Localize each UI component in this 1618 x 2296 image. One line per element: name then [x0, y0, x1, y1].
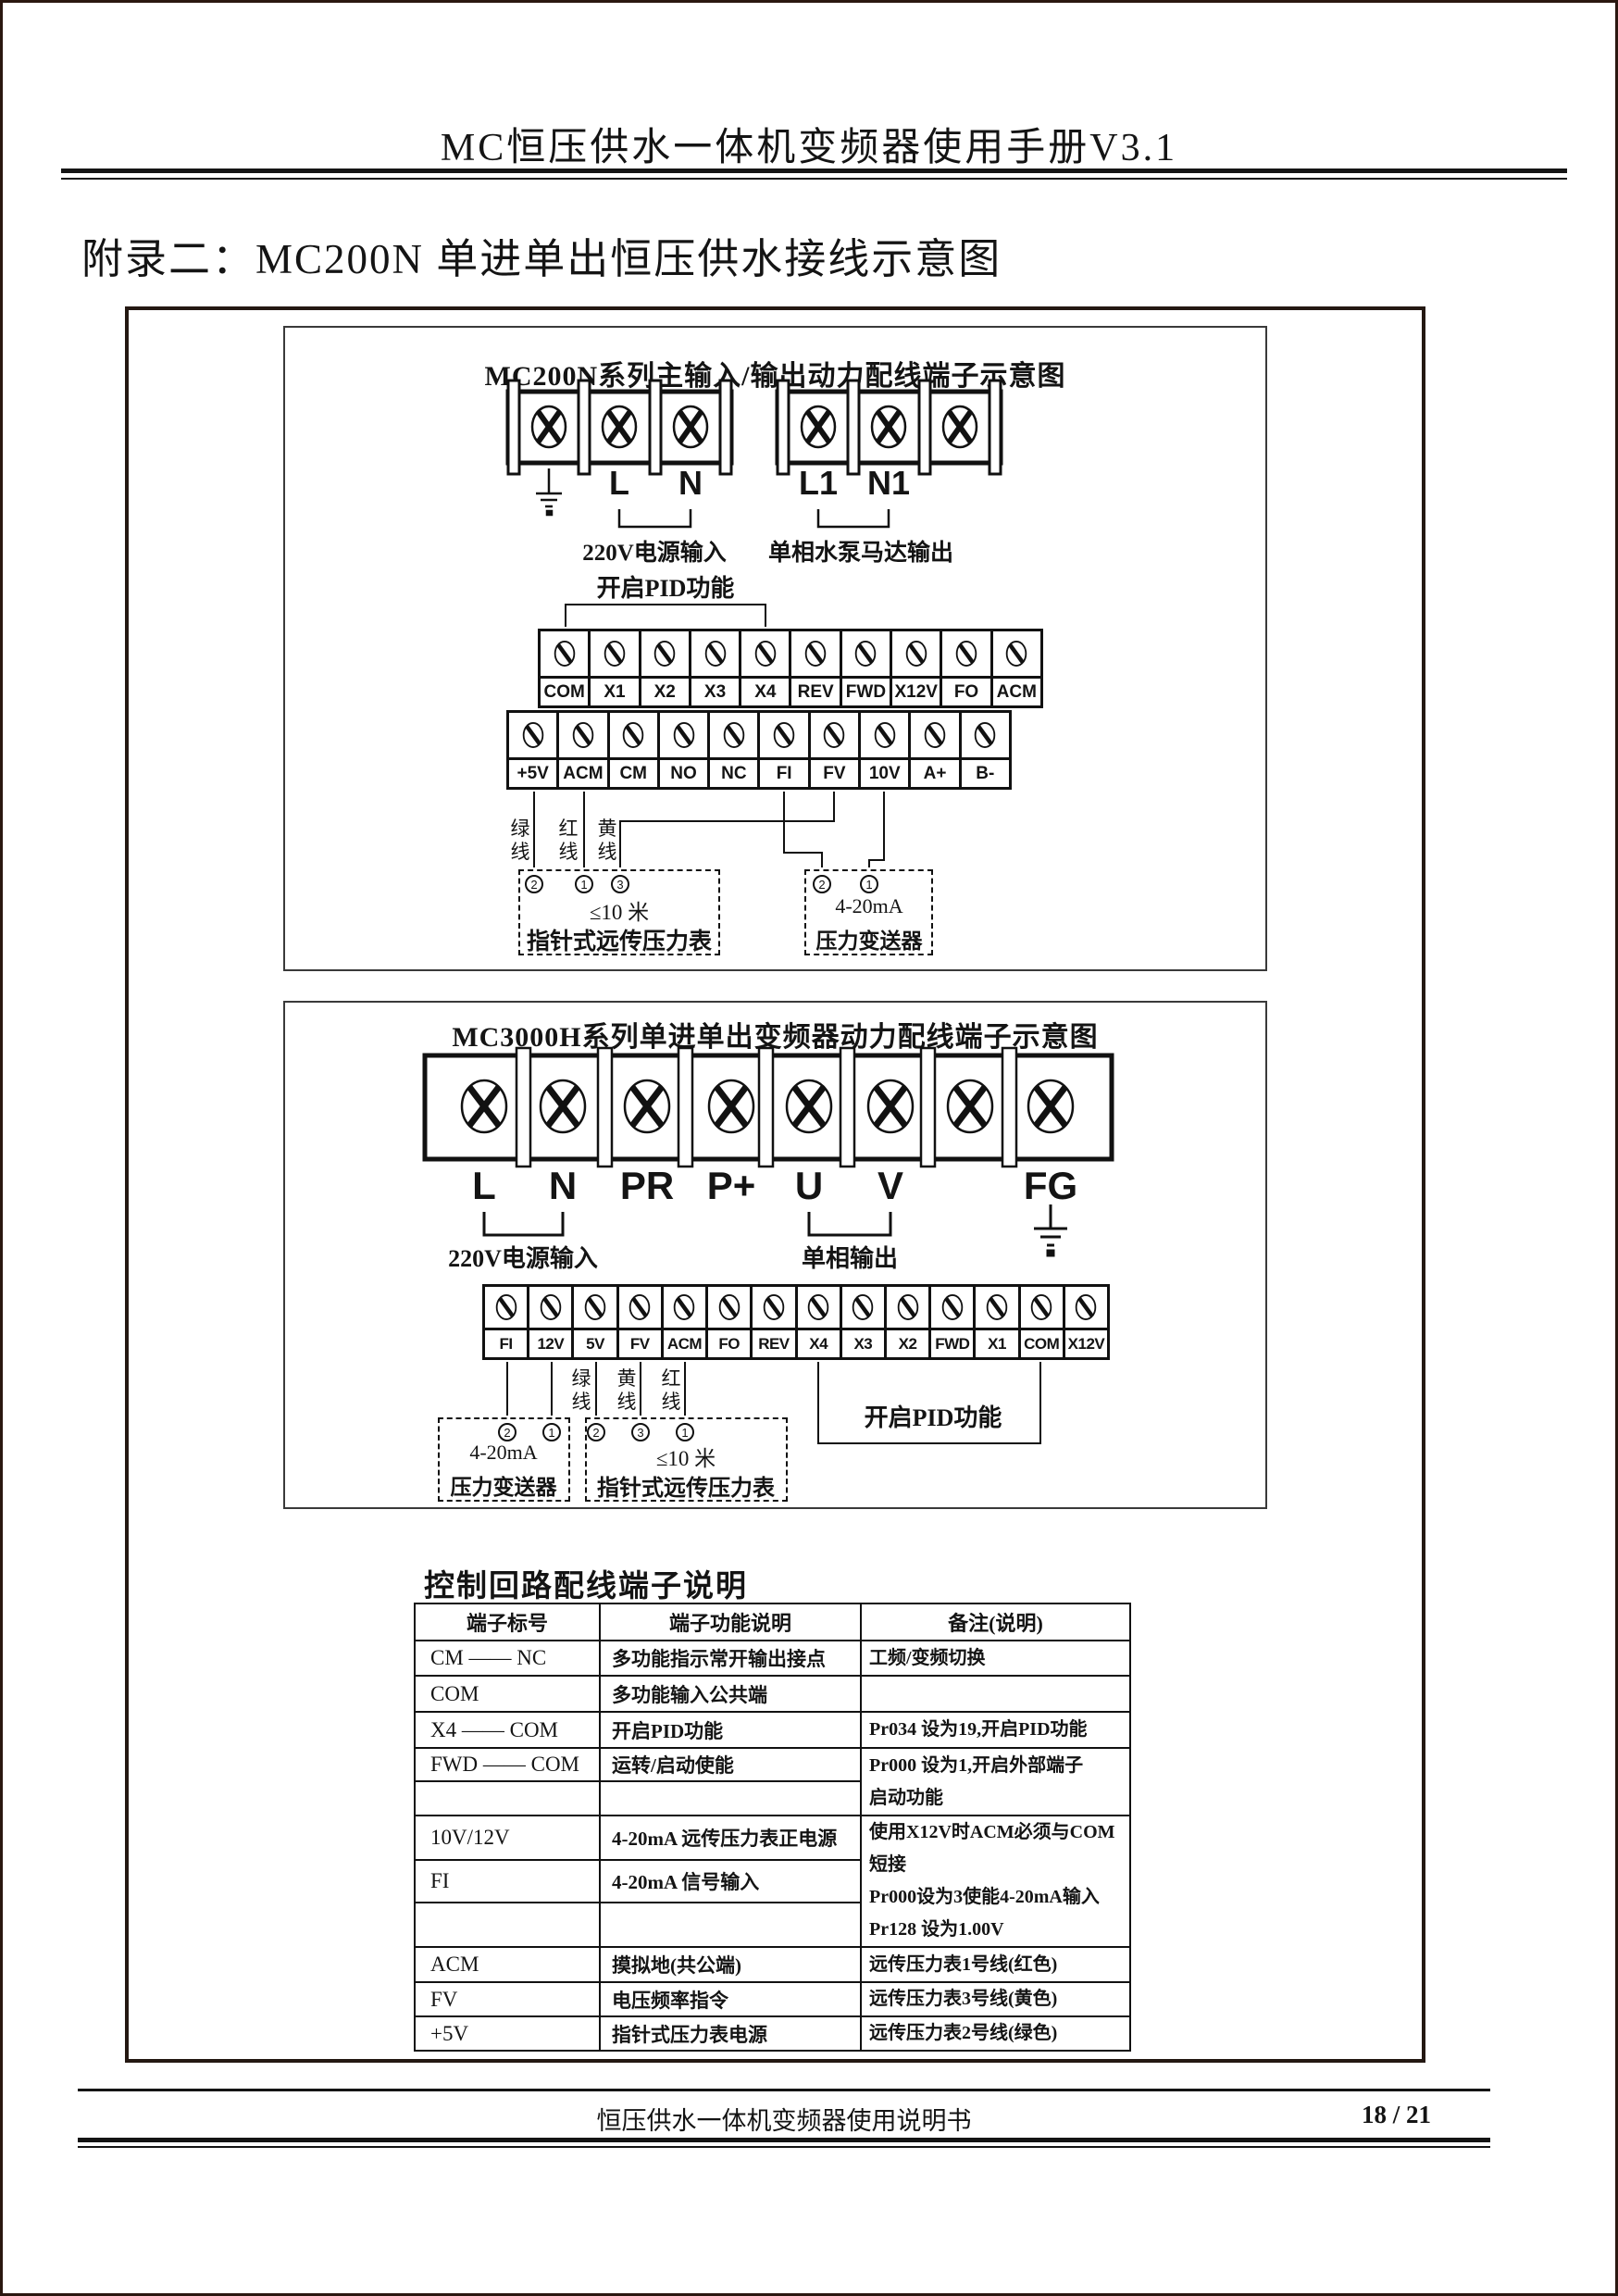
table-note-line: 远传压力表2号线(绿色) — [869, 2017, 1129, 2050]
table-cell-function — [600, 1903, 861, 1947]
terminal-cell: REV — [789, 631, 839, 705]
terminal-label: X2 — [887, 1328, 928, 1357]
table-cell-function: 4-20mA 远传压力表正电源 — [600, 1816, 861, 1860]
screw-slash-icon — [619, 1287, 661, 1328]
screw-slash-icon — [753, 1287, 794, 1328]
terminal-label: FWD — [842, 676, 890, 705]
appendix-title: 附录二：MC200N 单进单出恒压供水接线示意图 — [81, 225, 1002, 285]
table-cell-function: 开启PID功能 — [600, 1712, 861, 1748]
d1-sensor-line1: 4-20mA — [835, 894, 902, 918]
table-note-line: 远传压力表3号线(黄色) — [869, 1983, 1129, 2015]
terminal-label: FI — [760, 757, 807, 787]
screw-slash-icon — [559, 713, 606, 757]
screw-slash-icon — [641, 631, 689, 676]
screw-slash-icon — [1065, 1287, 1107, 1328]
screw-slash-icon — [887, 1287, 928, 1328]
d2-control-strip: FI12V5VFVACMFOREVX4X3X2FWDX1COMX12V — [482, 1284, 1110, 1360]
power-terminal-label: U — [795, 1164, 823, 1208]
d2-pid-caption: 开启PID功能 — [865, 1399, 1002, 1433]
screw-slash-icon — [485, 1287, 527, 1328]
table-cell-function: 多功能输入公共端 — [600, 1676, 861, 1712]
table-cell-function: 运转/启动使能 — [600, 1748, 861, 1781]
screw-slash-icon — [942, 631, 989, 676]
terminal-label: REV — [753, 1328, 794, 1357]
d1-input-caption: 220V电源输入 — [582, 534, 727, 568]
terminal-cell: FO — [705, 1287, 750, 1357]
terminal-cell: CM — [607, 713, 657, 787]
table-cell-function: 多功能指示常开输出接点 — [600, 1641, 861, 1676]
page-number: 18 / 21 — [1362, 2101, 1431, 2129]
table-cell-terminal: FI — [415, 1860, 600, 1903]
screw-slash-icon — [509, 713, 556, 757]
wire-number-badge: 2 — [498, 1423, 517, 1441]
table-cell-terminal: X4 —— COM — [415, 1712, 600, 1748]
terminal-cell: NO — [657, 713, 707, 787]
terminal-cell: X3 — [689, 631, 739, 705]
terminal-label: FI — [485, 1328, 527, 1357]
power-terminal-label: PR — [620, 1164, 674, 1208]
table-note-line: Pr128 设为1.00V — [869, 1914, 1129, 1946]
terminal-label: COM — [541, 676, 588, 705]
d2-sensor-line1: 4-20mA — [469, 1441, 537, 1465]
power-terminal-label: N — [549, 1164, 577, 1208]
terminal-cell: COM — [1018, 1287, 1063, 1357]
screw-slash-icon — [1021, 1287, 1063, 1328]
table-cell-function: 电压频率指令 — [600, 1982, 861, 2016]
terminal-label: X3 — [691, 676, 739, 705]
screw-slash-icon — [541, 631, 588, 676]
wire-number-badge: 1 — [860, 875, 878, 893]
wire-number-badge: 2 — [587, 1423, 605, 1441]
terminal-label: 10V — [861, 757, 908, 787]
screw-slash-icon — [811, 713, 858, 757]
table-note-line: 工频/变频切换 — [869, 1642, 1129, 1675]
terminal-cell: REV — [750, 1287, 794, 1357]
d1-sensor-line2: 压力变送器 — [816, 923, 923, 955]
screw-slash-icon — [861, 713, 908, 757]
table-row: CM —— NC多功能指示常开输出接点工频/变频切换 — [415, 1641, 1130, 1676]
terminal-cell: FO — [940, 631, 989, 705]
terminal-cell: FV — [808, 713, 858, 787]
diagram2-title: MC3000H系列单进单出变频器动力配线端子示意图 — [283, 1014, 1267, 1054]
d2-input-caption: 220V电源输入 — [448, 1240, 598, 1274]
terminal-label: FV — [619, 1328, 661, 1357]
manual-page: MC恒压供水一体机变频器使用手册V3.1 附录二：MC200N 单进单出恒压供水… — [0, 0, 1618, 2296]
terminal-label: X12V — [1065, 1328, 1107, 1357]
power-terminal-label: N — [678, 464, 703, 503]
footer-rule-thick — [78, 2138, 1490, 2142]
screw-slash-icon — [708, 1287, 750, 1328]
terminal-label: CM — [610, 757, 657, 787]
table-cell-terminal: FWD —— COM — [415, 1748, 600, 1781]
table-header-row: 端子标号端子功能说明备注(说明) — [415, 1603, 1130, 1641]
power-terminal-label: L — [472, 1164, 496, 1208]
table-cell-note: 远传压力表3号线(黄色) — [861, 1982, 1130, 2016]
table-row: +5V指针式压力表电源远传压力表2号线(绿色) — [415, 2016, 1130, 2051]
terminal-cell: X12V — [1063, 1287, 1107, 1357]
table-cell-note: 工频/变频切换 — [861, 1641, 1130, 1676]
wire-number-badge: 1 — [676, 1423, 694, 1441]
screw-slash-icon — [842, 631, 890, 676]
d1-wire-label-green: 绿线 — [508, 817, 532, 864]
table-header-cell: 备注(说明) — [861, 1603, 1130, 1641]
table-row: X4 —— COM开启PID功能Pr034 设为19,开启PID功能 — [415, 1712, 1130, 1748]
power-terminal-label: N1 — [867, 464, 910, 503]
terminal-label: 12V — [529, 1328, 571, 1357]
wire-number-badge: 1 — [542, 1423, 561, 1441]
screw-slash-icon — [710, 713, 757, 757]
table-cell-note: Pr000 设为1,开启外部端子启动功能 — [861, 1748, 1130, 1816]
wire-number-badge: 3 — [631, 1423, 650, 1441]
wire-number-badge: 3 — [611, 875, 629, 893]
terminal-label: X2 — [641, 676, 689, 705]
terminal-label: ACM — [993, 676, 1040, 705]
diagram1-title: MC200N系列主输入/输出动力配线端子示意图 — [283, 353, 1267, 393]
screw-slash-icon — [842, 1287, 884, 1328]
power-terminal-label: L — [609, 464, 629, 503]
terminal-cell: X4 — [739, 631, 789, 705]
table-cell-note: 远传压力表2号线(绿色) — [861, 2016, 1130, 2051]
table-cell-note: Pr034 设为19,开启PID功能 — [861, 1712, 1130, 1748]
terminal-cell: B- — [959, 713, 1009, 787]
table-note-line: 使用X12V时ACM必须与COM短接 — [869, 1816, 1129, 1881]
table-row: COM多功能输入公共端 — [415, 1676, 1130, 1712]
d1-output-caption: 单相水泵马达输出 — [768, 534, 953, 568]
terminal-cell: 5V — [571, 1287, 616, 1357]
table-note-line: Pr034 设为19,开启PID功能 — [869, 1714, 1129, 1746]
table-cell-terminal: CM —— NC — [415, 1641, 600, 1676]
table-cell-terminal: COM — [415, 1676, 600, 1712]
screw-slash-icon — [529, 1287, 571, 1328]
terminal-cell: X1 — [588, 631, 638, 705]
terminal-cell: X12V — [890, 631, 940, 705]
table-title: 控制回路配线端子说明 — [424, 1561, 748, 1605]
footer-title: 恒压供水一体机变频器使用说明书 — [78, 2101, 1490, 2137]
terminal-cell: ACM — [661, 1287, 705, 1357]
terminal-cell: FI — [485, 1287, 527, 1357]
terminal-cell: FWD — [928, 1287, 973, 1357]
terminal-label: NC — [710, 757, 757, 787]
table-header-cell: 端子标号 — [415, 1603, 600, 1641]
terminal-cell: +5V — [509, 713, 556, 787]
screw-slash-icon — [591, 631, 638, 676]
terminal-label: B- — [962, 757, 1009, 787]
terminal-cell: A+ — [908, 713, 958, 787]
terminal-label: FV — [811, 757, 858, 787]
terminal-label: X1 — [591, 676, 638, 705]
power-terminal-label: V — [877, 1164, 903, 1208]
terminal-cell: FWD — [840, 631, 890, 705]
power-terminal-label: P+ — [707, 1164, 756, 1208]
wire-number-badge: 2 — [525, 875, 543, 893]
terminal-label: NO — [660, 757, 707, 787]
table-cell-note: 远传压力表1号线(红色) — [861, 1947, 1130, 1982]
terminal-cell: FV — [616, 1287, 661, 1357]
table-cell-terminal: FV — [415, 1982, 600, 2016]
screw-slash-icon — [962, 713, 1009, 757]
table-note-line: 启动功能 — [869, 1782, 1129, 1815]
page-header-title: MC恒压供水一体机变频器使用手册V3.1 — [3, 116, 1615, 172]
d1-control-strip-row1: COMX1X2X3X4REVFWDX12VFOACM — [538, 629, 1043, 708]
terminal-label: ACM — [664, 1328, 705, 1357]
d2-wire-label-green: 绿线 — [569, 1367, 593, 1414]
screw-slash-icon — [798, 1287, 840, 1328]
terminal-cell: COM — [541, 631, 588, 705]
d1-gauge-line2: 指针式远传压力表 — [527, 923, 712, 956]
d2-wire-label-red: 红线 — [659, 1367, 683, 1414]
d2-wire-label-yellow: 黄线 — [615, 1367, 639, 1414]
table-cell-function: 摸拟地(共公端) — [600, 1947, 861, 1982]
terminal-cell: X2 — [639, 631, 689, 705]
table-row: 10V/12V4-20mA 远传压力表正电源使用X12V时ACM必须与COM短接… — [415, 1816, 1130, 1860]
terminal-label: 5V — [574, 1328, 616, 1357]
terminal-label: X4 — [798, 1328, 840, 1357]
terminal-label: FWD — [931, 1328, 973, 1357]
terminal-cell: NC — [707, 713, 757, 787]
screw-slash-icon — [931, 1287, 973, 1328]
terminal-label: X1 — [976, 1328, 1017, 1357]
screw-slash-icon — [610, 713, 657, 757]
power-terminal-label: FG — [1024, 1164, 1077, 1208]
table-note-line: 远传压力表1号线(红色) — [869, 1949, 1129, 1981]
table-cell-terminal: +5V — [415, 2016, 600, 2051]
terminal-label: FO — [708, 1328, 750, 1357]
screw-slash-icon — [574, 1287, 616, 1328]
d1-wire-label-red: 红线 — [556, 817, 580, 864]
terminal-cell: X3 — [840, 1287, 884, 1357]
header-rule-thin — [61, 178, 1567, 180]
header-rule-thick — [61, 168, 1567, 173]
screw-slash-icon — [993, 631, 1040, 676]
table-cell-terminal: ACM — [415, 1947, 600, 1982]
terminal-cell: ACM — [990, 631, 1040, 705]
terminal-cell: FI — [757, 713, 807, 787]
d2-gauge-line2: 指针式远传压力表 — [597, 1469, 775, 1502]
wire-number-badge: 1 — [575, 875, 593, 893]
wire-number-badge: 2 — [813, 875, 831, 893]
table-cell-note — [861, 1676, 1130, 1712]
table-note-line: Pr000 设为1,开启外部端子 — [869, 1750, 1129, 1782]
terminal-label: REV — [791, 676, 839, 705]
terminal-cell: ACM — [556, 713, 606, 787]
table-row: FWD —— COM运转/启动使能Pr000 设为1,开启外部端子启动功能 — [415, 1748, 1130, 1781]
d2-output-caption: 单相输出 — [802, 1240, 898, 1274]
table-cell-terminal — [415, 1903, 600, 1947]
d2-gauge-line1: ≤10 米 — [656, 1441, 716, 1472]
terminal-cell: 10V — [858, 713, 908, 787]
terminal-label: ACM — [559, 757, 606, 787]
screw-slash-icon — [760, 713, 807, 757]
terminal-label: +5V — [509, 757, 556, 787]
terminal-cell: 12V — [527, 1287, 571, 1357]
screw-slash-icon — [976, 1287, 1017, 1328]
d1-gauge-line1: ≤10 米 — [590, 894, 649, 926]
table-cell-terminal — [415, 1781, 600, 1816]
table-cell-terminal: 10V/12V — [415, 1816, 600, 1860]
table-cell-function: 指针式压力表电源 — [600, 2016, 861, 2051]
terminal-cell: X2 — [884, 1287, 928, 1357]
terminal-description-table: 端子标号端子功能说明备注(说明)CM —— NC多功能指示常开输出接点工频/变频… — [414, 1603, 1131, 2052]
terminal-label: X3 — [842, 1328, 884, 1357]
d1-wire-label-yellow: 黄线 — [595, 817, 619, 864]
power-terminal-label: L1 — [799, 464, 838, 503]
table-row: FV电压频率指令远传压力表3号线(黄色) — [415, 1982, 1130, 2016]
table-note-line: Pr000设为3使能4-20mA输入 — [869, 1881, 1129, 1914]
d1-control-strip-row2: +5VACMCMNONCFIFV10VA+B- — [506, 710, 1012, 790]
terminal-label: X12V — [892, 676, 940, 705]
footer-rule-thin — [78, 2146, 1490, 2148]
terminal-label: A+ — [911, 757, 958, 787]
terminal-cell: X4 — [795, 1287, 840, 1357]
terminal-cell: X1 — [973, 1287, 1017, 1357]
table-cell-function — [600, 1781, 861, 1816]
screw-slash-icon — [892, 631, 940, 676]
d1-pid-caption: 开启PID功能 — [597, 569, 735, 604]
screw-slash-icon — [791, 631, 839, 676]
table-row: ACM摸拟地(共公端)远传压力表1号线(红色) — [415, 1947, 1130, 1982]
screw-slash-icon — [911, 713, 958, 757]
screw-slash-icon — [741, 631, 789, 676]
terminal-label: FO — [942, 676, 989, 705]
screw-slash-icon — [660, 713, 707, 757]
d2-sensor-line2: 压力变送器 — [451, 1469, 557, 1501]
screw-slash-icon — [664, 1287, 705, 1328]
terminal-label: COM — [1021, 1328, 1063, 1357]
terminal-label: X4 — [741, 676, 789, 705]
screw-slash-icon — [691, 631, 739, 676]
footer-rule-top — [78, 2089, 1490, 2091]
table-cell-note: 使用X12V时ACM必须与COM短接Pr000设为3使能4-20mA输入Pr12… — [861, 1816, 1130, 1947]
table-cell-function: 4-20mA 信号输入 — [600, 1860, 861, 1903]
table-header-cell: 端子功能说明 — [600, 1603, 861, 1641]
